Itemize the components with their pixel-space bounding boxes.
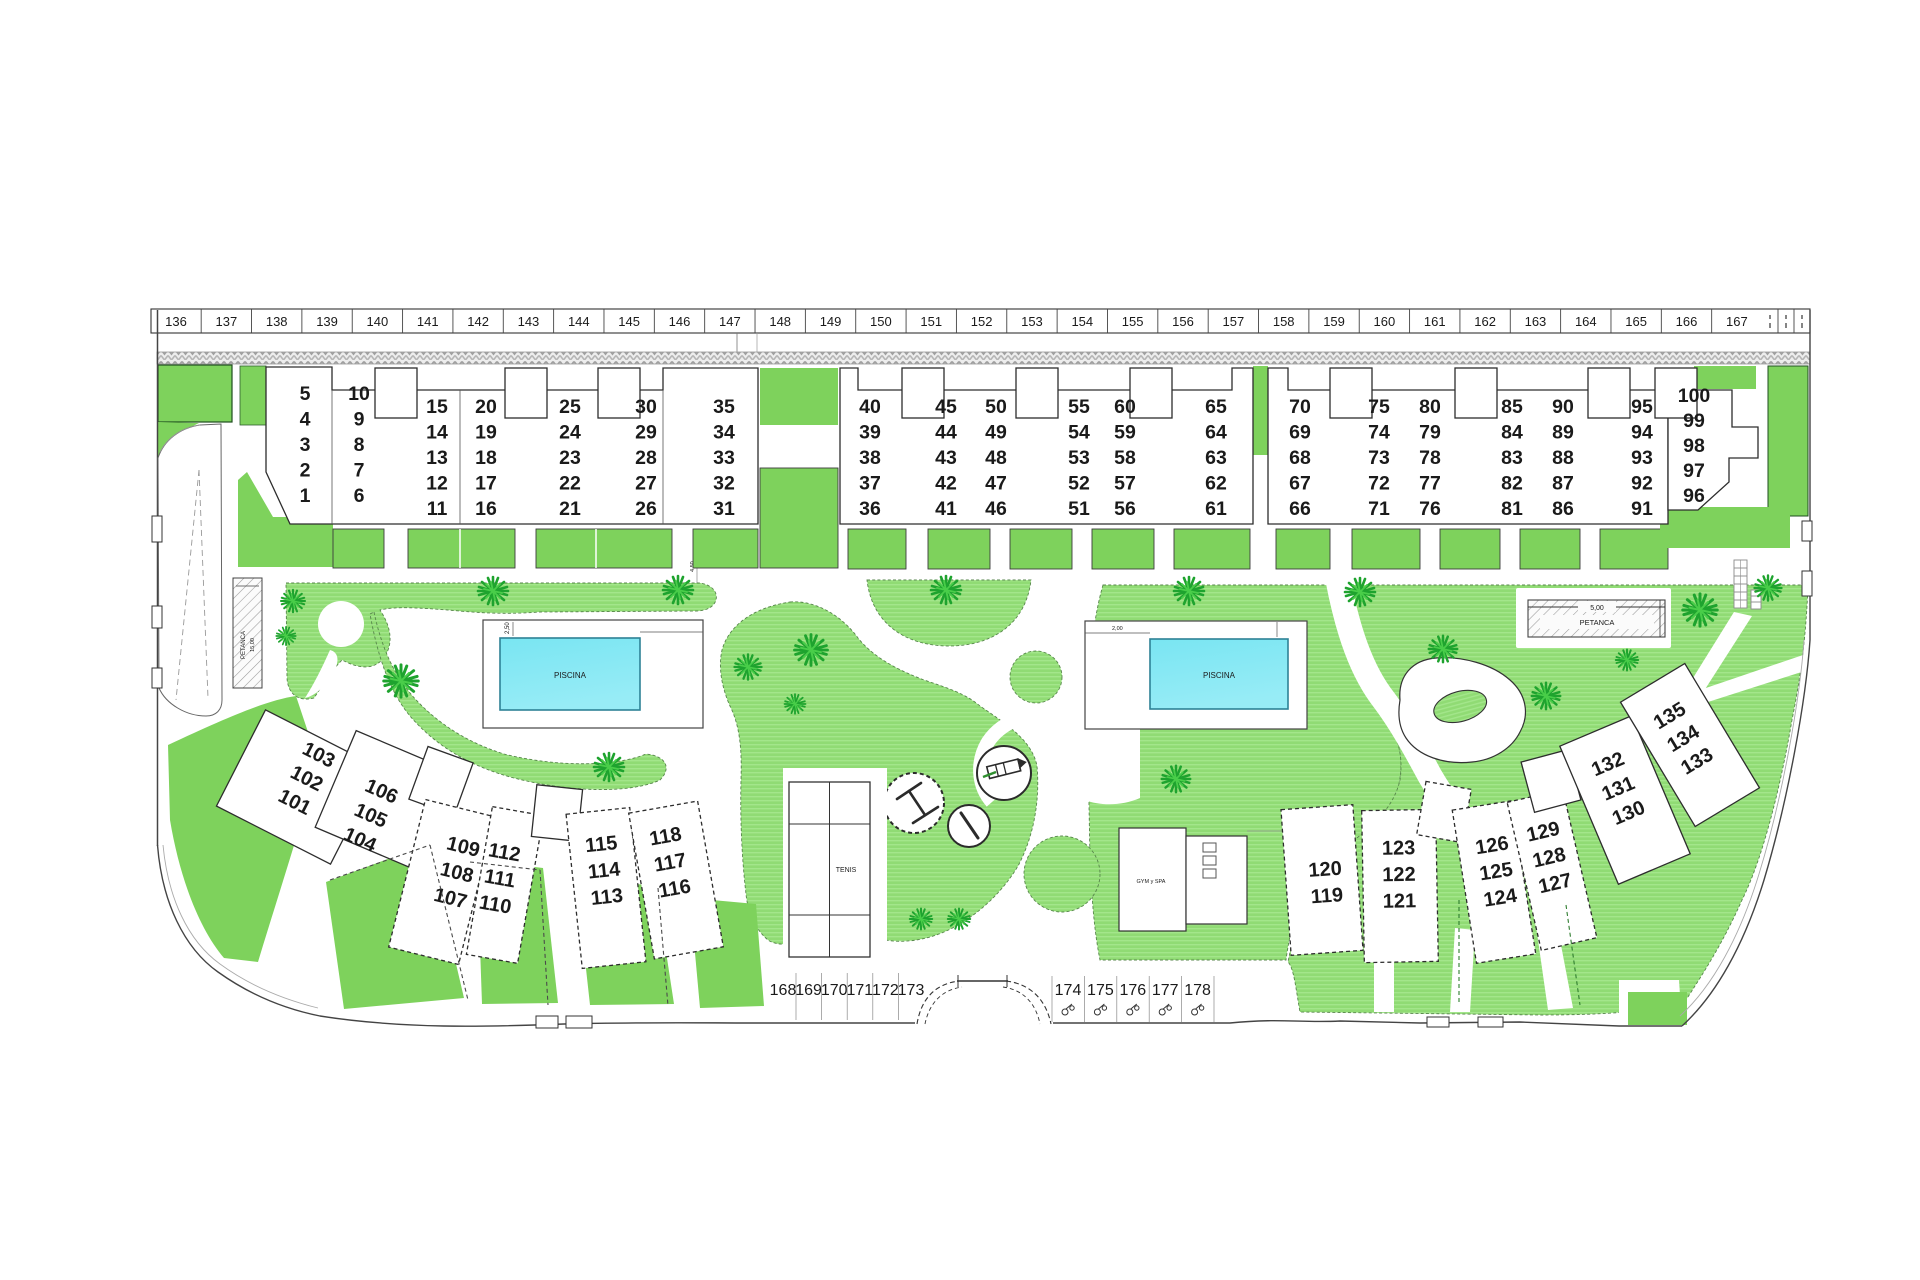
svg-text:144: 144 — [568, 314, 590, 329]
svg-text:18: 18 — [475, 447, 497, 469]
svg-text:121: 121 — [1383, 890, 1417, 913]
svg-text:44: 44 — [935, 422, 957, 444]
svg-text:159: 159 — [1323, 314, 1345, 329]
svg-text:59: 59 — [1114, 422, 1136, 444]
svg-text:17: 17 — [475, 473, 497, 495]
svg-text:173: 173 — [898, 982, 925, 999]
svg-text:139: 139 — [316, 314, 338, 329]
svg-text:82: 82 — [1501, 473, 1523, 495]
svg-text:71: 71 — [1368, 498, 1390, 520]
svg-text:62: 62 — [1205, 473, 1227, 495]
svg-text:93: 93 — [1631, 447, 1653, 469]
svg-text:68: 68 — [1289, 447, 1311, 469]
svg-text:165: 165 — [1625, 314, 1647, 329]
svg-text:150: 150 — [870, 314, 892, 329]
svg-text:95: 95 — [1631, 396, 1653, 418]
svg-text:15,00: 15,00 — [250, 638, 256, 652]
svg-text:152: 152 — [971, 314, 993, 329]
svg-text:48: 48 — [985, 447, 1007, 469]
svg-text:100: 100 — [1678, 385, 1711, 407]
svg-text:56: 56 — [1114, 498, 1136, 520]
svg-text:42: 42 — [935, 473, 957, 495]
svg-text:58: 58 — [1114, 447, 1136, 469]
svg-text:83: 83 — [1501, 447, 1523, 469]
svg-text:53: 53 — [1068, 447, 1090, 469]
svg-text:29: 29 — [635, 422, 657, 444]
svg-text:160: 160 — [1374, 314, 1396, 329]
svg-text:72: 72 — [1368, 473, 1390, 495]
svg-text:61: 61 — [1205, 498, 1227, 520]
svg-text:11: 11 — [427, 498, 448, 520]
svg-text:27: 27 — [635, 473, 657, 495]
svg-text:122: 122 — [1382, 864, 1416, 887]
svg-text:69: 69 — [1289, 422, 1311, 444]
svg-text:141: 141 — [417, 314, 439, 329]
svg-text:162: 162 — [1474, 314, 1496, 329]
svg-text:9: 9 — [354, 409, 365, 431]
svg-text:136: 136 — [165, 314, 187, 329]
svg-text:30: 30 — [635, 396, 657, 418]
svg-text:31: 31 — [713, 498, 735, 520]
svg-text:37: 37 — [859, 473, 881, 495]
svg-text:115: 115 — [584, 832, 618, 857]
svg-text:86: 86 — [1552, 498, 1574, 520]
svg-text:40: 40 — [859, 396, 881, 418]
svg-text:PETANCA: PETANCA — [1580, 618, 1615, 627]
svg-text:20: 20 — [475, 396, 497, 418]
svg-text:43: 43 — [935, 447, 957, 469]
svg-text:169: 169 — [795, 982, 822, 999]
svg-text:50: 50 — [985, 396, 1007, 418]
svg-text:74: 74 — [1368, 422, 1390, 444]
svg-text:57: 57 — [1114, 473, 1136, 495]
svg-text:170: 170 — [821, 982, 848, 999]
svg-text:88: 88 — [1552, 447, 1574, 469]
svg-text:33: 33 — [713, 447, 735, 469]
svg-text:76: 76 — [1419, 498, 1441, 520]
svg-text:PETANCA: PETANCA — [241, 631, 247, 659]
svg-text:161: 161 — [1424, 314, 1446, 329]
svg-text:78: 78 — [1419, 447, 1441, 469]
svg-text:171: 171 — [846, 982, 873, 999]
svg-text:84: 84 — [1501, 422, 1523, 444]
svg-text:28: 28 — [635, 447, 657, 469]
svg-text:123: 123 — [1382, 837, 1416, 860]
svg-text:41: 41 — [935, 498, 957, 520]
svg-text:81: 81 — [1501, 498, 1523, 520]
svg-text:120: 120 — [1308, 858, 1343, 882]
svg-text:PISCINA: PISCINA — [554, 671, 587, 680]
svg-text:73: 73 — [1368, 447, 1390, 469]
svg-text:19: 19 — [475, 422, 497, 444]
svg-text:4: 4 — [300, 409, 311, 431]
svg-text:176: 176 — [1119, 982, 1146, 999]
svg-text:113: 113 — [590, 885, 624, 910]
svg-text:2,50: 2,50 — [505, 622, 511, 634]
svg-text:142: 142 — [467, 314, 489, 329]
svg-text:153: 153 — [1021, 314, 1043, 329]
svg-text:65: 65 — [1205, 396, 1227, 418]
svg-text:91: 91 — [1631, 498, 1653, 520]
svg-text:163: 163 — [1525, 314, 1547, 329]
svg-text:21: 21 — [559, 498, 581, 520]
svg-text:5,00: 5,00 — [1590, 605, 1604, 612]
svg-text:54: 54 — [1068, 422, 1090, 444]
svg-text:145: 145 — [618, 314, 640, 329]
svg-text:175: 175 — [1087, 982, 1114, 999]
svg-text:39: 39 — [859, 422, 881, 444]
svg-text:23: 23 — [559, 447, 581, 469]
svg-text:15: 15 — [426, 396, 448, 418]
svg-text:168: 168 — [770, 982, 797, 999]
svg-text:143: 143 — [518, 314, 540, 329]
svg-text:5: 5 — [300, 383, 311, 405]
svg-text:114: 114 — [587, 858, 622, 883]
svg-text:178: 178 — [1184, 982, 1211, 999]
svg-text:157: 157 — [1222, 314, 1244, 329]
svg-text:PISCINA: PISCINA — [1203, 671, 1236, 680]
svg-text:94: 94 — [1631, 422, 1653, 444]
svg-text:89: 89 — [1552, 422, 1574, 444]
svg-text:52: 52 — [1068, 473, 1090, 495]
svg-text:77: 77 — [1419, 473, 1441, 495]
svg-text:155: 155 — [1122, 314, 1144, 329]
svg-text:172: 172 — [872, 982, 899, 999]
svg-text:154: 154 — [1071, 314, 1093, 329]
svg-text:70: 70 — [1289, 396, 1311, 418]
svg-text:1: 1 — [300, 485, 311, 507]
svg-text:85: 85 — [1501, 396, 1523, 418]
svg-text:138: 138 — [266, 314, 288, 329]
svg-text:24: 24 — [559, 422, 581, 444]
svg-text:36: 36 — [859, 498, 881, 520]
svg-text:137: 137 — [215, 314, 237, 329]
svg-text:GYM y SPA: GYM y SPA — [1137, 879, 1166, 885]
svg-text:3: 3 — [300, 434, 311, 456]
svg-text:51: 51 — [1068, 498, 1090, 520]
svg-text:148: 148 — [769, 314, 791, 329]
svg-text:46: 46 — [985, 498, 1007, 520]
svg-text:79: 79 — [1419, 422, 1441, 444]
svg-text:149: 149 — [820, 314, 842, 329]
svg-text:140: 140 — [367, 314, 389, 329]
svg-text:22: 22 — [559, 473, 581, 495]
svg-text:147: 147 — [719, 314, 741, 329]
svg-text:6: 6 — [354, 485, 365, 507]
svg-text:35: 35 — [713, 396, 735, 418]
svg-text:2: 2 — [300, 460, 311, 482]
svg-text:49: 49 — [985, 422, 1007, 444]
svg-text:TENIS: TENIS — [836, 867, 857, 874]
svg-text:87: 87 — [1552, 473, 1574, 495]
svg-text:96: 96 — [1683, 485, 1705, 507]
svg-text:151: 151 — [920, 314, 942, 329]
svg-text:7: 7 — [354, 460, 365, 482]
svg-text:26: 26 — [635, 498, 657, 520]
svg-text:90: 90 — [1552, 396, 1574, 418]
svg-text:14: 14 — [426, 422, 448, 444]
svg-text:64: 64 — [1205, 422, 1227, 444]
svg-text:75: 75 — [1368, 396, 1390, 418]
svg-text:47: 47 — [985, 473, 1007, 495]
svg-text:45: 45 — [935, 396, 957, 418]
svg-text:10: 10 — [348, 383, 370, 405]
svg-text:8: 8 — [354, 434, 365, 456]
svg-text:146: 146 — [669, 314, 691, 329]
svg-text:34: 34 — [713, 422, 735, 444]
svg-text:63: 63 — [1205, 447, 1227, 469]
svg-text:32: 32 — [713, 473, 735, 495]
svg-text:119: 119 — [1310, 884, 1344, 908]
svg-text:97: 97 — [1683, 460, 1705, 482]
svg-text:177: 177 — [1152, 982, 1179, 999]
svg-text:25: 25 — [559, 396, 581, 418]
svg-text:38: 38 — [859, 447, 881, 469]
svg-text:156: 156 — [1172, 314, 1194, 329]
svg-text:60: 60 — [1114, 396, 1136, 418]
svg-text:13: 13 — [426, 447, 448, 469]
svg-text:99: 99 — [1683, 410, 1705, 432]
svg-text:67: 67 — [1289, 473, 1311, 495]
svg-text:164: 164 — [1575, 314, 1597, 329]
svg-text:174: 174 — [1055, 982, 1082, 999]
svg-text:167: 167 — [1726, 314, 1748, 329]
svg-text:55: 55 — [1068, 396, 1090, 418]
svg-text:80: 80 — [1419, 396, 1441, 418]
svg-text:66: 66 — [1289, 498, 1311, 520]
svg-text:98: 98 — [1683, 435, 1705, 457]
svg-text:2,00: 2,00 — [1112, 626, 1123, 632]
svg-text:92: 92 — [1631, 473, 1653, 495]
svg-text:166: 166 — [1676, 314, 1698, 329]
svg-text:16: 16 — [475, 498, 497, 520]
svg-text:158: 158 — [1273, 314, 1295, 329]
svg-text:12: 12 — [426, 473, 448, 495]
